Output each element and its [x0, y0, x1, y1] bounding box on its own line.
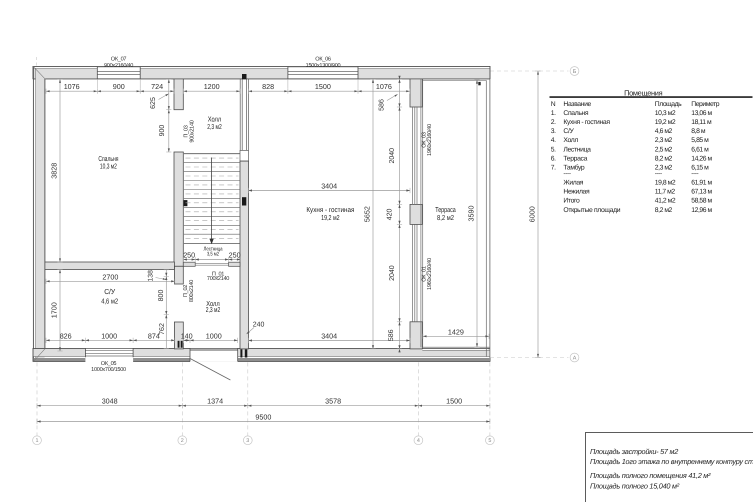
svg-text:13,06 м: 13,06 м	[691, 110, 712, 117]
svg-text:1000: 1000	[206, 331, 222, 340]
svg-text:1429: 1429	[448, 327, 464, 336]
svg-text:9500: 9500	[255, 413, 271, 422]
svg-text:826: 826	[60, 331, 72, 340]
svg-text:3: 3	[246, 438, 249, 444]
svg-text:586: 586	[379, 99, 386, 111]
svg-text:3578: 3578	[325, 397, 341, 406]
svg-text:2,3 м2: 2,3 м2	[206, 305, 221, 314]
svg-text:3828: 3828	[50, 163, 59, 179]
svg-text:625: 625	[150, 97, 157, 109]
svg-text:41,2 м2: 41,2 м2	[655, 198, 676, 205]
svg-text:----: ----	[655, 170, 662, 177]
svg-text:3404: 3404	[321, 332, 337, 341]
svg-text:2700: 2700	[102, 272, 118, 281]
svg-text:А: А	[573, 355, 577, 361]
svg-text:2,5 м2: 2,5 м2	[655, 146, 673, 153]
svg-text:1076: 1076	[64, 82, 80, 91]
svg-text:2040: 2040	[389, 148, 396, 164]
svg-text:10,3 м2: 10,3 м2	[100, 162, 117, 171]
svg-text:3048: 3048	[102, 397, 118, 406]
svg-text:6.: 6.	[551, 155, 556, 162]
svg-text:4.: 4.	[551, 137, 556, 144]
svg-text:5652: 5652	[363, 206, 372, 222]
svg-text:800х2140: 800х2140	[189, 280, 195, 302]
svg-text:250: 250	[229, 251, 241, 260]
svg-text:1500: 1500	[315, 82, 331, 91]
svg-text:138: 138	[147, 270, 154, 282]
svg-text:240: 240	[253, 321, 265, 328]
svg-text:5,85 м: 5,85 м	[691, 137, 709, 144]
svg-text:8,2 м2: 8,2 м2	[655, 155, 673, 162]
svg-text:5: 5	[488, 438, 491, 444]
svg-text:828: 828	[262, 82, 274, 91]
svg-text:Открытые площади: Открытые площади	[563, 207, 620, 214]
svg-text:1500х1300/900: 1500х1300/900	[306, 62, 341, 69]
svg-text:6000: 6000	[528, 206, 537, 222]
svg-text:----: ----	[691, 170, 698, 177]
svg-text:14,26 м: 14,26 м	[691, 155, 712, 162]
svg-text:874: 874	[148, 331, 160, 340]
svg-text:1000: 1000	[101, 331, 117, 340]
svg-text:Площадь полного 15,040 м²: Площадь полного 15,040 м²	[590, 481, 680, 490]
svg-text:61,91 м: 61,91 м	[691, 179, 712, 186]
svg-text:ОК_06: ОК_06	[315, 57, 331, 63]
svg-text:140: 140	[181, 331, 193, 340]
svg-text:1: 1	[36, 438, 39, 444]
svg-text:3590: 3590	[467, 206, 476, 222]
svg-text:Площадь 1ого этажа по внутренн: Площадь 1ого этажа по внутреннему контур…	[590, 457, 753, 466]
svg-text:Терраса: Терраса	[563, 155, 587, 162]
svg-text:Площадь полного помещения 41,2: Площадь полного помещения 41,2 м²	[590, 471, 711, 480]
svg-text:724: 724	[151, 82, 163, 91]
svg-text:8,2 м2: 8,2 м2	[437, 213, 454, 222]
svg-text:18,11 м: 18,11 м	[691, 119, 712, 126]
svg-text:Название: Название	[563, 101, 591, 108]
svg-text:19,2 м2: 19,2 м2	[655, 119, 676, 126]
svg-text:Спальня: Спальня	[563, 110, 589, 117]
svg-text:Нежилая: Нежилая	[563, 188, 590, 195]
svg-text:1.: 1.	[551, 110, 556, 117]
svg-text:900х2160/40: 900х2160/40	[104, 62, 133, 69]
svg-text:19,8 м2: 19,8 м2	[655, 179, 676, 186]
svg-text:1960х2160/40: 1960х2160/40	[426, 124, 433, 156]
svg-text:Итого: Итого	[563, 198, 580, 205]
svg-text:1076: 1076	[376, 82, 392, 91]
svg-text:Площадь застройки- 57 м2: Площадь застройки- 57 м2	[590, 447, 678, 456]
svg-text:1700: 1700	[50, 302, 59, 318]
svg-text:Лестница: Лестница	[563, 146, 591, 153]
svg-text:2040: 2040	[389, 265, 396, 281]
svg-text:19,2 м2: 19,2 м2	[321, 213, 340, 222]
svg-text:Периметр: Периметр	[691, 101, 719, 108]
svg-text:С/У: С/У	[104, 287, 115, 296]
svg-text:900: 900	[159, 125, 166, 137]
svg-text:Помещения: Помещения	[624, 89, 663, 98]
svg-text:2,3 м2: 2,3 м2	[655, 137, 673, 144]
svg-text:58,58 м: 58,58 м	[691, 198, 712, 205]
svg-text:800: 800	[158, 290, 165, 302]
svg-text:----: ----	[563, 170, 570, 177]
svg-text:5.: 5.	[551, 146, 556, 153]
svg-text:ОК_07: ОК_07	[111, 57, 127, 63]
svg-text:700х2140: 700х2140	[207, 276, 229, 282]
svg-text:3,5 м2: 3,5 м2	[207, 252, 219, 258]
svg-text:11,7 м2: 11,7 м2	[655, 188, 676, 195]
svg-text:7.: 7.	[551, 164, 556, 171]
svg-text:3.: 3.	[551, 128, 556, 135]
svg-text:Жилая: Жилая	[563, 179, 583, 186]
svg-text:4: 4	[417, 438, 420, 444]
svg-text:8,8 м: 8,8 м	[691, 128, 706, 135]
svg-text:1000х700/1500: 1000х700/1500	[91, 366, 126, 373]
svg-text:3404: 3404	[321, 182, 337, 191]
svg-text:250: 250	[183, 251, 195, 260]
svg-text:900: 900	[113, 82, 125, 91]
svg-text:ОК_05: ОК_05	[101, 361, 117, 367]
svg-text:8,2 м2: 8,2 м2	[655, 207, 673, 214]
svg-text:Кухня - гостиная: Кухня - гостиная	[563, 119, 610, 126]
svg-text:Б: Б	[573, 69, 577, 75]
svg-text:4,6 м2: 4,6 м2	[101, 296, 118, 305]
svg-text:1374: 1374	[207, 397, 223, 406]
svg-text:420: 420	[387, 208, 394, 220]
svg-text:Холл: Холл	[563, 137, 578, 144]
svg-text:67,13 м: 67,13 м	[691, 188, 712, 195]
svg-text:N: N	[551, 101, 556, 108]
svg-text:1960х2160/40: 1960х2160/40	[426, 258, 433, 290]
svg-text:4,6 м2: 4,6 м2	[655, 128, 673, 135]
svg-text:10,3 м2: 10,3 м2	[655, 110, 676, 117]
svg-text:1200: 1200	[204, 82, 220, 91]
svg-text:900х2140: 900х2140	[190, 120, 196, 142]
svg-text:2,3 м2: 2,3 м2	[207, 122, 222, 131]
svg-text:2: 2	[181, 438, 184, 444]
svg-text:С/У: С/У	[563, 128, 574, 135]
svg-text:2.: 2.	[551, 119, 556, 126]
svg-text:586: 586	[388, 329, 395, 341]
svg-text:1500: 1500	[446, 397, 462, 406]
svg-text:12,96 м: 12,96 м	[691, 207, 712, 214]
svg-text:Площадь: Площадь	[655, 101, 682, 108]
svg-text:762: 762	[159, 323, 166, 335]
svg-text:6,61 м: 6,61 м	[691, 146, 709, 153]
